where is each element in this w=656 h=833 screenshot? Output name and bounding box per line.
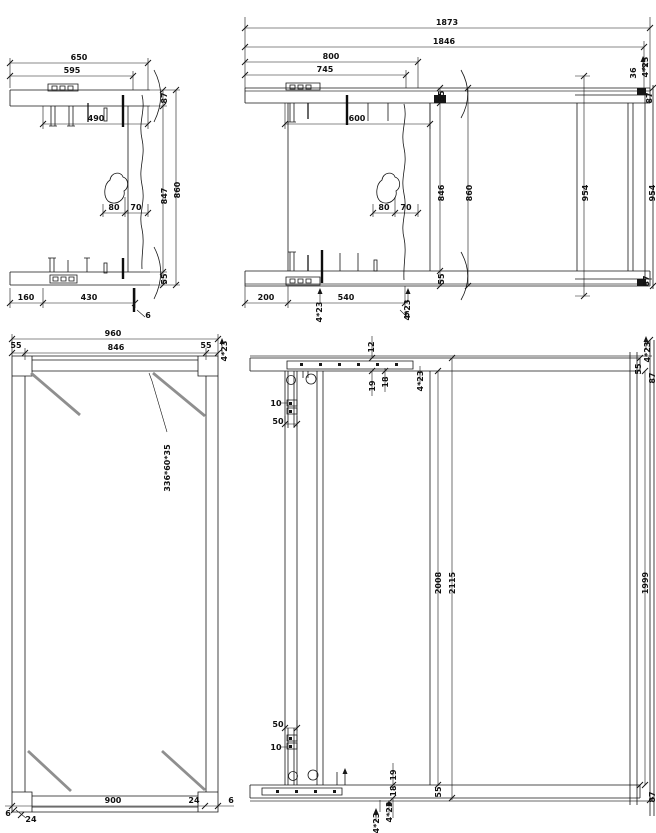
dim-label: 960 [105, 329, 122, 338]
drawing-end-frame-full: 18731846800745600807020054064*234*235584… [242, 17, 656, 322]
dim-label: 55 [634, 363, 643, 375]
dim-label: 430 [81, 293, 98, 302]
drawing-end-frame-left: 650595490807016043068784786055 [7, 53, 182, 320]
dim-label: 70 [130, 203, 142, 212]
dim-label: 954 [581, 184, 590, 201]
dim-label: 55 [437, 90, 446, 102]
dim-label: 860 [173, 181, 182, 198]
dim-label: 36 [629, 67, 638, 79]
dim-label: 50 [272, 720, 284, 729]
dim-label: 846 [437, 184, 446, 201]
drawing-braced-frame: 96084655554*23336*60*35900246624 [5, 329, 234, 824]
dim-label: 87 [645, 92, 654, 103]
dimension-labels-d4: 1219184*23554*23871050200821151999501019… [270, 341, 656, 833]
dim-label: 55 [437, 273, 446, 285]
hole-outline [105, 173, 128, 203]
dim-label: 55 [434, 786, 443, 798]
dim-label: 745 [317, 65, 334, 74]
dim-label: 4*23 [372, 813, 381, 833]
dim-label: 6 [228, 796, 234, 805]
dim-label: 55 [160, 273, 169, 285]
dim-label: 4*23 [641, 57, 650, 78]
cad-sheet: 650595490807016043068784786055 187318468… [0, 0, 656, 833]
dim-label: 160 [18, 293, 35, 302]
dim-label: 6 [145, 311, 151, 320]
dim-label: 6 [5, 809, 11, 818]
dim-label: 87 [160, 92, 169, 103]
dim-label: 70 [400, 203, 412, 212]
dim-label: 80 [378, 203, 390, 212]
dim-label: 2008 [434, 571, 443, 594]
dimension-labels-d1: 650595490807016043068784786055 [18, 53, 182, 320]
dim-label: 336*60*35 [163, 444, 172, 492]
dim-label: 4*23 [416, 371, 425, 392]
dim-label: 18 [381, 376, 390, 388]
dim-label: 200 [258, 293, 275, 302]
dim-label: 800 [323, 52, 340, 61]
dim-label: 4*23 [403, 300, 412, 321]
dim-label: 1846 [433, 37, 456, 46]
drawing-tall-frame: 1219184*23554*23871050200821151999501019… [250, 336, 656, 833]
dim-label: 846 [108, 343, 125, 352]
dim-label: 24 [188, 796, 200, 805]
dim-label: 4*23 [385, 802, 394, 823]
dim-label: 2115 [448, 571, 457, 594]
dim-label: 18 [389, 785, 398, 797]
dim-label: 540 [338, 293, 355, 302]
dim-label: 12 [367, 341, 376, 352]
dim-label: 1999 [641, 571, 650, 594]
dim-label: 4*23 [220, 341, 229, 362]
hole-outline [377, 173, 400, 203]
dim-label: 80 [108, 203, 120, 212]
dim-label: 595 [64, 66, 81, 75]
dim-label: 954 [648, 184, 656, 201]
dim-label: 55 [200, 341, 212, 350]
dim-label: 860 [465, 184, 474, 201]
dim-label: 10 [270, 743, 282, 752]
dim-label: 900 [105, 796, 122, 805]
dim-label: 87 [648, 791, 656, 802]
technical-drawing-canvas: 650595490807016043068784786055 187318468… [0, 0, 656, 833]
dim-label: 87 [648, 372, 656, 383]
dim-label: 490 [88, 114, 105, 123]
dim-label: 650 [71, 53, 88, 62]
dim-label: 55 [10, 341, 22, 350]
dim-label: 87 [642, 275, 651, 286]
dim-label: 19 [368, 380, 377, 392]
dim-label: 19 [389, 769, 398, 781]
dim-label: 847 [160, 188, 169, 205]
dim-label: 1873 [436, 18, 458, 27]
dimension-labels-d3: 96084655554*23336*60*35900246624 [5, 329, 234, 824]
dim-label: 600 [349, 114, 366, 123]
dim-label: 10 [270, 399, 282, 408]
diagonal-braces [28, 373, 205, 791]
dim-label: 24 [25, 815, 37, 824]
dim-label: 50 [272, 417, 284, 426]
dim-label: 4*23 [643, 342, 652, 363]
dim-label: 4*23 [315, 302, 324, 323]
